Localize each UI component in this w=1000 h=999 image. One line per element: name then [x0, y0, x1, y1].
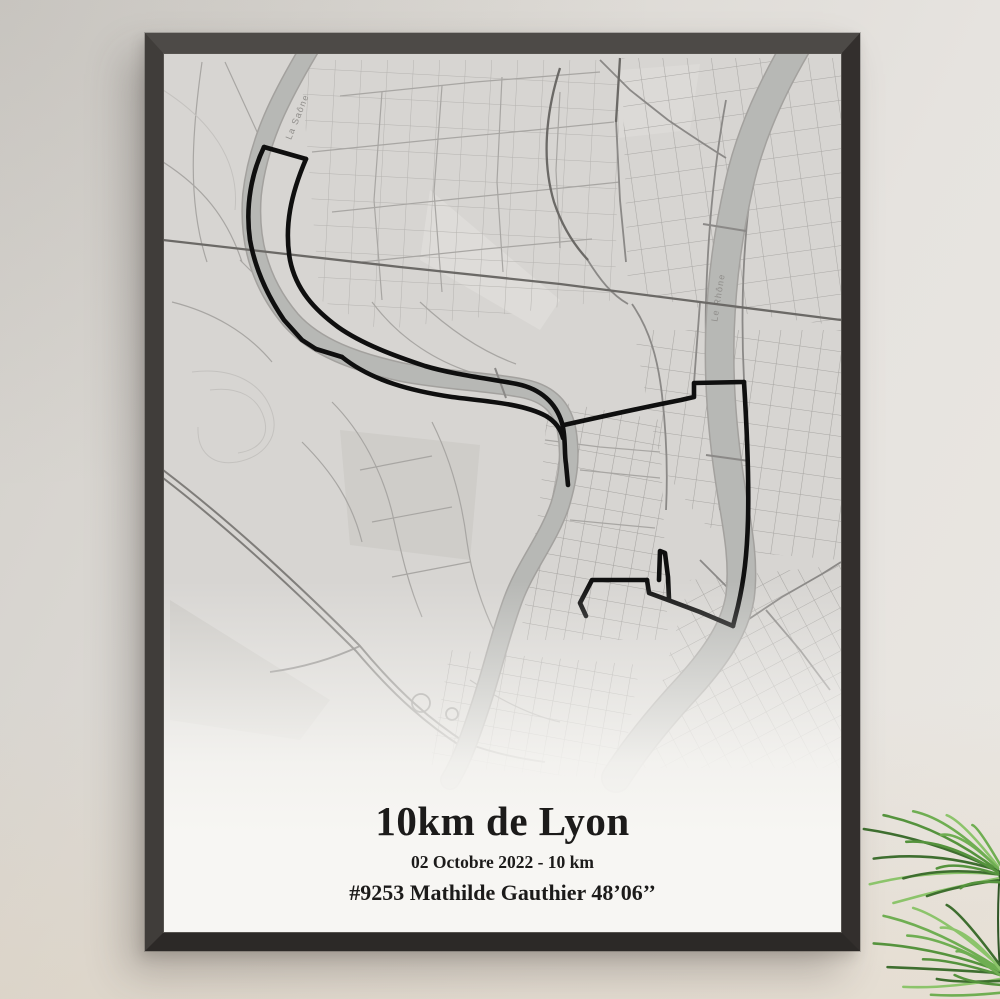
- race-date-distance: 02 Octobre 2022 - 10 km: [164, 852, 841, 873]
- race-title: 10km de Lyon: [164, 800, 841, 843]
- map-poster: La Saône Le Rhône 10km de Lyon 02 Octobr…: [164, 54, 841, 932]
- picture-frame: La Saône Le Rhône 10km de Lyon 02 Octobr…: [145, 33, 860, 951]
- plant: [852, 807, 1000, 999]
- plant-leaves: [864, 811, 1000, 995]
- runner-bib-name-time: #9253 Mathilde Gauthier 48’06’’: [164, 880, 841, 906]
- poster-text: 10km de Lyon 02 Octobre 2022 - 10 km #92…: [164, 800, 841, 906]
